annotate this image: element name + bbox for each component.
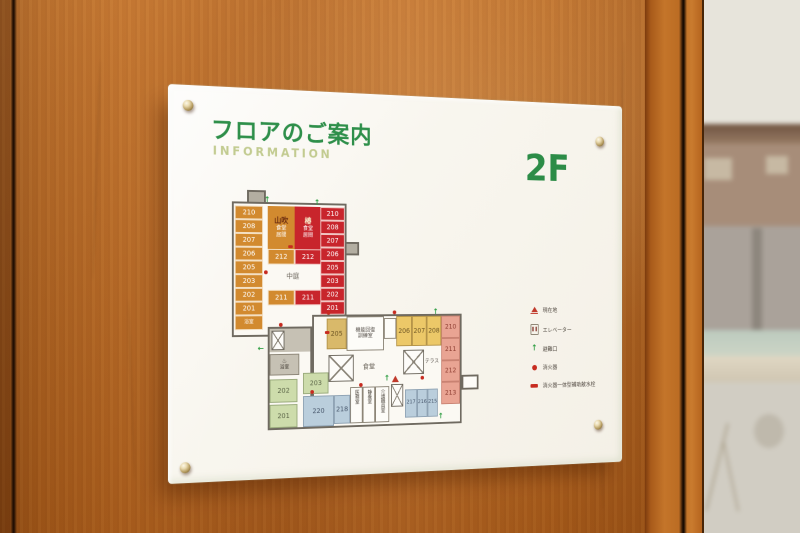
foliage-blob [754,414,784,448]
mount-screw-icon [183,100,194,111]
legend-label: 消火器一体型補助散水栓 [543,380,596,390]
fire-hydrant-icon [288,245,293,248]
fire-extinguisher-icon [279,323,283,327]
current-location-icon [392,375,399,382]
bath-lower-label: 浴室 [280,365,289,370]
terrace-label: テラス [425,359,439,365]
legend: 現在地 エレベーター ↑ 避難口 消火器 消火器一体型補助散水栓 [530,305,613,399]
room-206-left: 206 [235,247,263,261]
elevator-shaft [271,331,284,351]
mount-screw-icon [595,136,604,146]
orange-unit-name: 山吹 [274,217,288,225]
room-208-yellow: 208 [427,316,442,346]
pillar-seam [679,0,687,533]
room-210-left: 210 [235,205,263,219]
room-216-blue: 216 [417,389,427,417]
sign-subtitle: INFORMATION [213,144,333,162]
wood-grain-streak [91,60,102,280]
room-207-left: 207 [235,233,263,247]
room-206-right: 206 [320,247,344,261]
legend-label: 現在地 [543,306,558,314]
sign-panel: フロアのご案内 INFORMATION 2F 210 208 207 206 2… [168,84,622,484]
room-211-orange: 211 [268,290,295,306]
emergency-exit-icon: ↑ [433,308,439,316]
building-window [766,156,788,174]
emergency-exit-icon: ↑ [258,345,266,352]
fire-hydrant-icon [325,331,330,334]
window-scene [702,0,800,533]
rest-room: 静養室 [363,386,375,423]
building-upper [702,0,800,132]
room-215-blue: 215 [427,389,437,417]
mount-screw-icon [594,420,603,430]
legend-item-fire-hydrant: 消火器一体型補助散水栓 [530,379,613,389]
orange-unit-living: 居間 [276,233,286,239]
legend-label: 避難口 [543,345,558,353]
wood-pillar [645,0,702,533]
wall-seam [10,0,17,533]
room-208-left: 208 [235,219,263,233]
elevator-icon [530,324,539,335]
emergency-exit-icon: ↑ [264,196,270,204]
emergency-exit-icon: ↑ [438,413,444,421]
stairs-right [345,242,359,255]
room-210-right: 210 [320,207,344,221]
room-205-right: 205 [320,261,344,275]
room-202-green: 202 [270,379,298,403]
red-unit-living: 居間 [303,233,313,239]
room-205-left: 205 [235,260,263,274]
room-211-pink: 211 [441,338,460,361]
room-203-green: 203 [303,372,329,394]
legend-item-fire-extinguisher: 消火器 [530,361,613,371]
small-room [384,318,396,339]
room-207-yellow: 207 [412,316,427,346]
room-205-lower: 205 [327,318,347,349]
scene: フロアのご案内 INFORMATION 2F 210 208 207 206 2… [0,0,800,533]
care-staff-room: 介護職員室 [375,386,389,422]
fire-extinguisher-icon [393,310,397,314]
room-212-pink: 212 [441,360,460,382]
building-window [704,158,732,180]
room-201-green: 201 [270,404,298,428]
fire-hydrant-icon [530,383,539,387]
bath-lower: ♨ 浴室 [270,354,300,376]
elevator-shaft [391,384,403,407]
building-roof-band [702,124,800,146]
bath-left: 浴室 [235,315,263,330]
balcony-glass [702,330,800,358]
orange-unit-dining: 食堂 [276,226,286,232]
dining-label: 食堂 [363,364,375,371]
room-203-left: 203 [235,274,263,288]
room-203-right: 203 [320,274,344,287]
stairs-right-lower [462,374,479,389]
fire-extinguisher-icon [327,311,331,315]
wall-left-strip [0,0,10,533]
room-217-blue: 217 [405,389,417,418]
room-206-yellow: 206 [396,316,412,346]
room-213-pink: 213 [441,381,460,404]
floor-plan: 210 208 207 206 205 203 202 201 浴室 山吹 食堂… [224,187,502,459]
medical-room: 医務室 [350,387,363,424]
room-207-right: 207 [320,234,344,248]
room-218-blue: 218 [334,395,350,424]
emergency-exit-icon: ↑ [530,345,539,353]
light-well [403,350,424,375]
room-210-pink: 210 [441,316,460,339]
room-202-right: 202 [320,288,344,301]
emergency-exit-icon: ↑ [384,375,390,383]
wood-grain-streak [127,300,136,480]
red-unit-name: 椿 [305,217,312,225]
room-208-right: 208 [320,220,344,234]
current-location-icon [530,306,539,313]
mount-screw-icon [180,462,191,473]
rehab-room: 機能回復 訓練室 [347,316,384,351]
room-212-red: 212 [295,249,322,265]
fire-extinguisher-icon [530,364,539,370]
legend-item-current-location: 現在地 [530,305,613,314]
legend-item-emergency-exit: ↑ 避難口 [530,344,613,354]
elevator-shaft [329,355,354,382]
legend-label: エレベーター [543,325,572,333]
room-211-red: 211 [295,290,322,306]
courtyard-label: 中庭 [286,273,299,280]
fire-extinguisher-icon [264,270,268,274]
window-view [702,0,800,533]
legend-label: 消火器 [543,363,558,371]
window-lower-area [702,382,800,533]
room-201-left: 201 [235,302,263,316]
room-220-blue: 220 [303,395,334,427]
rehab-room-label-2: 訓練室 [358,333,373,339]
red-unit-lounge: 椿 食堂 居間 [295,207,322,250]
room-202-left: 202 [235,288,263,302]
red-unit-dining: 食堂 [303,226,313,232]
emergency-exit-icon: ↑ [314,199,320,207]
legend-item-elevator: エレベーター [530,323,613,335]
fire-extinguisher-icon [421,376,424,380]
room-201-right: 201 [320,301,344,315]
room-212-orange: 212 [268,249,295,265]
orange-unit-lounge: 山吹 食堂 居間 [268,206,295,249]
balcony-rail [702,356,800,382]
floor-label: 2F [525,147,570,190]
